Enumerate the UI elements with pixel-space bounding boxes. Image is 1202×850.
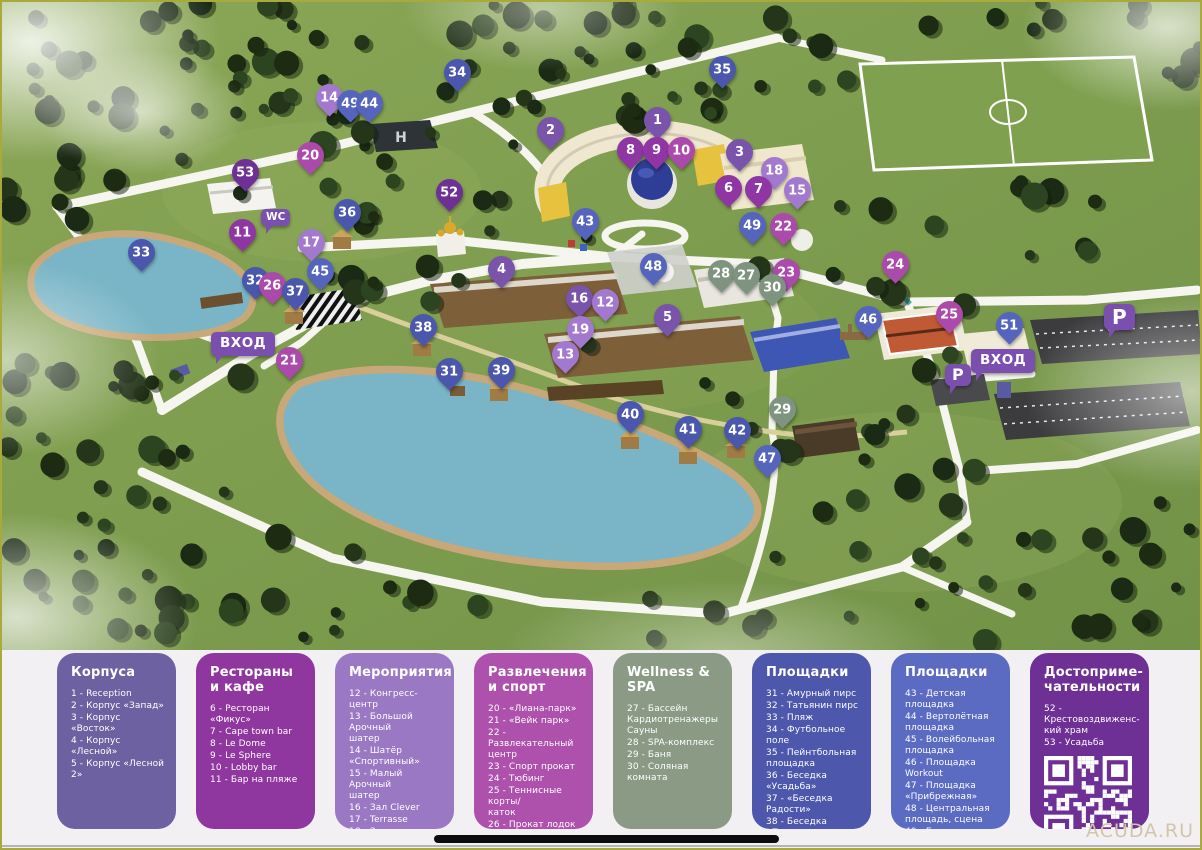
map-pin-number: 1 [652, 114, 661, 127]
map-pin-number: 26 [263, 279, 281, 292]
parking-sign: P [1104, 304, 1135, 330]
legend-item: 24 - Тюбинг [488, 774, 582, 785]
legend-item: 21 - «Вейк парк» [488, 716, 582, 727]
map-pin-number: 11 [233, 226, 251, 239]
map-pin-number: 45 [311, 265, 329, 278]
map-pin-number: 52 [440, 186, 458, 199]
legend-panel-title: Площадки [766, 666, 860, 681]
legend-item: 30 - Соляная комната [627, 762, 721, 784]
legend-item: 47 - Площадка «Прибрежная» [905, 781, 999, 803]
football-field [860, 57, 1152, 170]
legend-strip: Корпуса1 - Reception2 - Корпус «Запад»3 … [57, 653, 1149, 829]
map-pin-number: 30 [763, 281, 781, 294]
legend-item: 52 - Крестовоздвиженс- кий храм [1044, 704, 1138, 737]
legend-item: 16 - Зал Clever [349, 803, 443, 814]
legend-item: 31 - Амурный пирс [766, 689, 860, 700]
map-pin-number: 7 [753, 183, 762, 196]
map-pin-number: 20 [301, 149, 319, 162]
legend-item: 49 - Бильярд [905, 827, 999, 829]
map-pin-number: 39 [492, 364, 510, 377]
legend-panel-2: Рестораны и кафе6 - Ресторан «Фикус»7 - … [196, 653, 315, 829]
legend-item: 23 - Спорт прокат [488, 762, 582, 773]
map-pin-number: 44 [360, 97, 378, 110]
legend-item: 45 - Волейбольная площадка [905, 735, 999, 757]
map-pin-number: 22 [774, 220, 792, 233]
legend-item: 8 - Le Dome [210, 739, 304, 750]
legend-panel-6: Площадки31 - Амурный пирс32 - Татьянин п… [752, 653, 871, 829]
wc-sign: WC [261, 209, 290, 226]
map-pin-number: 24 [886, 258, 904, 271]
legend-item: 7 - Cape town bar [210, 727, 304, 738]
legend-item: 43 - Детская площадка [905, 689, 999, 711]
legend-item: 20 - «Лиана-парк» [488, 704, 582, 715]
map-pin-number: 13 [556, 348, 574, 361]
legend-item: 10 - Lobby bar [210, 763, 304, 774]
map-pin-number: 46 [859, 313, 877, 326]
map-pin-number: 34 [448, 66, 466, 79]
svg-text:H: H [395, 130, 407, 146]
map-pin-number: 4 [496, 263, 505, 276]
map-pin-number: 19 [571, 323, 589, 336]
map-pin-number: 14 [320, 91, 338, 104]
map-pin-number: 33 [132, 246, 150, 259]
legend-item: 5 - Корпус «Лесной 2» [71, 759, 165, 781]
legend-panel-5: Wellness & SPA27 - Бассейн Кардиотренаже… [613, 653, 732, 829]
map-pin-number: 5 [662, 311, 671, 324]
legend-item: 17 - Terrasse [349, 815, 443, 826]
map-pin-number: 6 [723, 182, 732, 195]
legend-item: 33 - Пляж [766, 713, 860, 724]
map-pin-number: 51 [1000, 319, 1018, 332]
map-pin-number: 47 [758, 452, 776, 465]
map-pin-number: 16 [570, 292, 588, 305]
legend-panel-title: Площадки [905, 666, 999, 681]
legend-panel-8: Достоприме- чательности52 - Крестовоздви… [1030, 653, 1149, 829]
map-pin-number: 29 [773, 403, 791, 416]
map-pin-number: 2 [545, 124, 554, 137]
legend-panel-1: Корпуса1 - Reception2 - Корпус «Запад»3 … [57, 653, 176, 829]
map-pin-number: 53 [236, 166, 254, 179]
legend-item: 12 - Конгресс-центр [349, 689, 443, 711]
legend-item: 22 - Развлекательный центр [488, 728, 582, 761]
legend-item: 32 - Татьянин пирс [766, 701, 860, 712]
map-pin-number: 25 [940, 308, 958, 321]
map-pin-number: 42 [728, 424, 746, 437]
legend-item: 1 - Reception [71, 689, 165, 700]
watermark: ACUDA.RU [1086, 820, 1194, 842]
legend-item: 25 - Теннисные корты/ каток [488, 786, 582, 819]
qr-code [1044, 756, 1132, 829]
map-pin-number: 31 [440, 365, 458, 378]
map-pin-number: 43 [576, 215, 594, 228]
legend-item: 35 - Пейнтбольная площадка [766, 748, 860, 770]
legend-item: 6 - Ресторан «Фикус» [210, 704, 304, 726]
legend-panel-title: Развлечения и спорт [488, 666, 582, 696]
legend-panel-7: Площадки43 - Детская площадка44 - Вертол… [891, 653, 1010, 829]
legend-panel-title: Корпуса [71, 666, 165, 681]
legend-item: 26 - Прокат лодок и катамаранов [488, 820, 582, 829]
map-pin-number: 49 [743, 219, 761, 232]
map-pin-number: 18 [765, 164, 783, 177]
separator-line [2, 845, 1200, 847]
legend-panel-title: Рестораны и кафе [210, 666, 304, 696]
map-pin-number: 41 [679, 423, 697, 436]
map-pin-number: 40 [621, 408, 639, 421]
legend-item: 2 - Корпус «Запад» [71, 701, 165, 712]
legend-item: 46 - Площадка Workout [905, 758, 999, 780]
map-pin-number: 38 [414, 321, 432, 334]
entrance-sign: ВХОД [211, 332, 275, 356]
legend-item: 28 - SPA-комплекс [627, 738, 721, 749]
map-pin-number: 9 [651, 144, 660, 157]
map-canvas[interactable]: H [2, 2, 1202, 650]
map-pin-number: 36 [338, 206, 356, 219]
map-pin-number: 15 [788, 184, 806, 197]
legend-item: 29 - Баня [627, 750, 721, 761]
parking-sign: P [945, 364, 971, 386]
map-pin-number: 27 [737, 269, 755, 282]
legend-panel-title: Достоприме- чательности [1044, 666, 1138, 696]
legend-item: 11 - Бар на пляже [210, 775, 304, 786]
map-pin-number: 28 [712, 267, 730, 280]
legend-item: 37 - «Беседка Радости» [766, 794, 860, 816]
legend-panel-3: Мероприятия12 - Конгресс-центр13 - Больш… [335, 653, 454, 829]
legend-item: 3 - Корпус «Восток» [71, 713, 165, 735]
legend-item: 27 - Бассейн Кардиотренажеры Сауны [627, 704, 721, 737]
resort-map-page: H [0, 0, 1202, 850]
legend-panel-4: Развлечения и спорт20 - «Лиана-парк»21 -… [474, 653, 593, 829]
map-pin-number: 35 [713, 63, 731, 76]
map-pin-number: 17 [302, 236, 320, 249]
legend-item: 44 - Вертолётная площадка [905, 712, 999, 734]
legend-item: 18 - Зал «Авангард» [349, 827, 443, 829]
legend-item: 4 - Корпус «Лесной» [71, 736, 165, 758]
legend-panel-title: Wellness & SPA [627, 666, 721, 696]
legend-item: 34 - Футбольное поле [766, 725, 860, 747]
map-pin-number: 3 [734, 146, 743, 159]
map-pin-number: 48 [644, 260, 662, 273]
legend-item: 9 - Le Sphere [210, 751, 304, 762]
legend-item: 14 - Шатёр «Спортивный» [349, 746, 443, 768]
legend-item: 53 - Усадьба [1044, 738, 1138, 749]
map-pin-number: 37 [286, 285, 304, 298]
legend-item: 48 - Центральная площадь, сцена [905, 804, 999, 826]
home-indicator-bar [434, 835, 779, 843]
map-pin-number: 12 [596, 296, 614, 309]
entrance-sign: ВХОД [971, 349, 1035, 373]
map-pin-number: 10 [672, 144, 690, 157]
map-pin-number: 21 [280, 354, 298, 367]
map-pin-number: 8 [625, 144, 634, 157]
legend-item: 38 - Беседка «Приамурье» [766, 817, 860, 829]
legend-item: 15 - Малый Арочный шатер [349, 769, 443, 802]
legend-panel-title: Мероприятия [349, 666, 443, 681]
legend-item: 36 - Беседка «Усадьба» [766, 771, 860, 793]
legend-item: 13 - Большой Арочный шатер [349, 712, 443, 745]
